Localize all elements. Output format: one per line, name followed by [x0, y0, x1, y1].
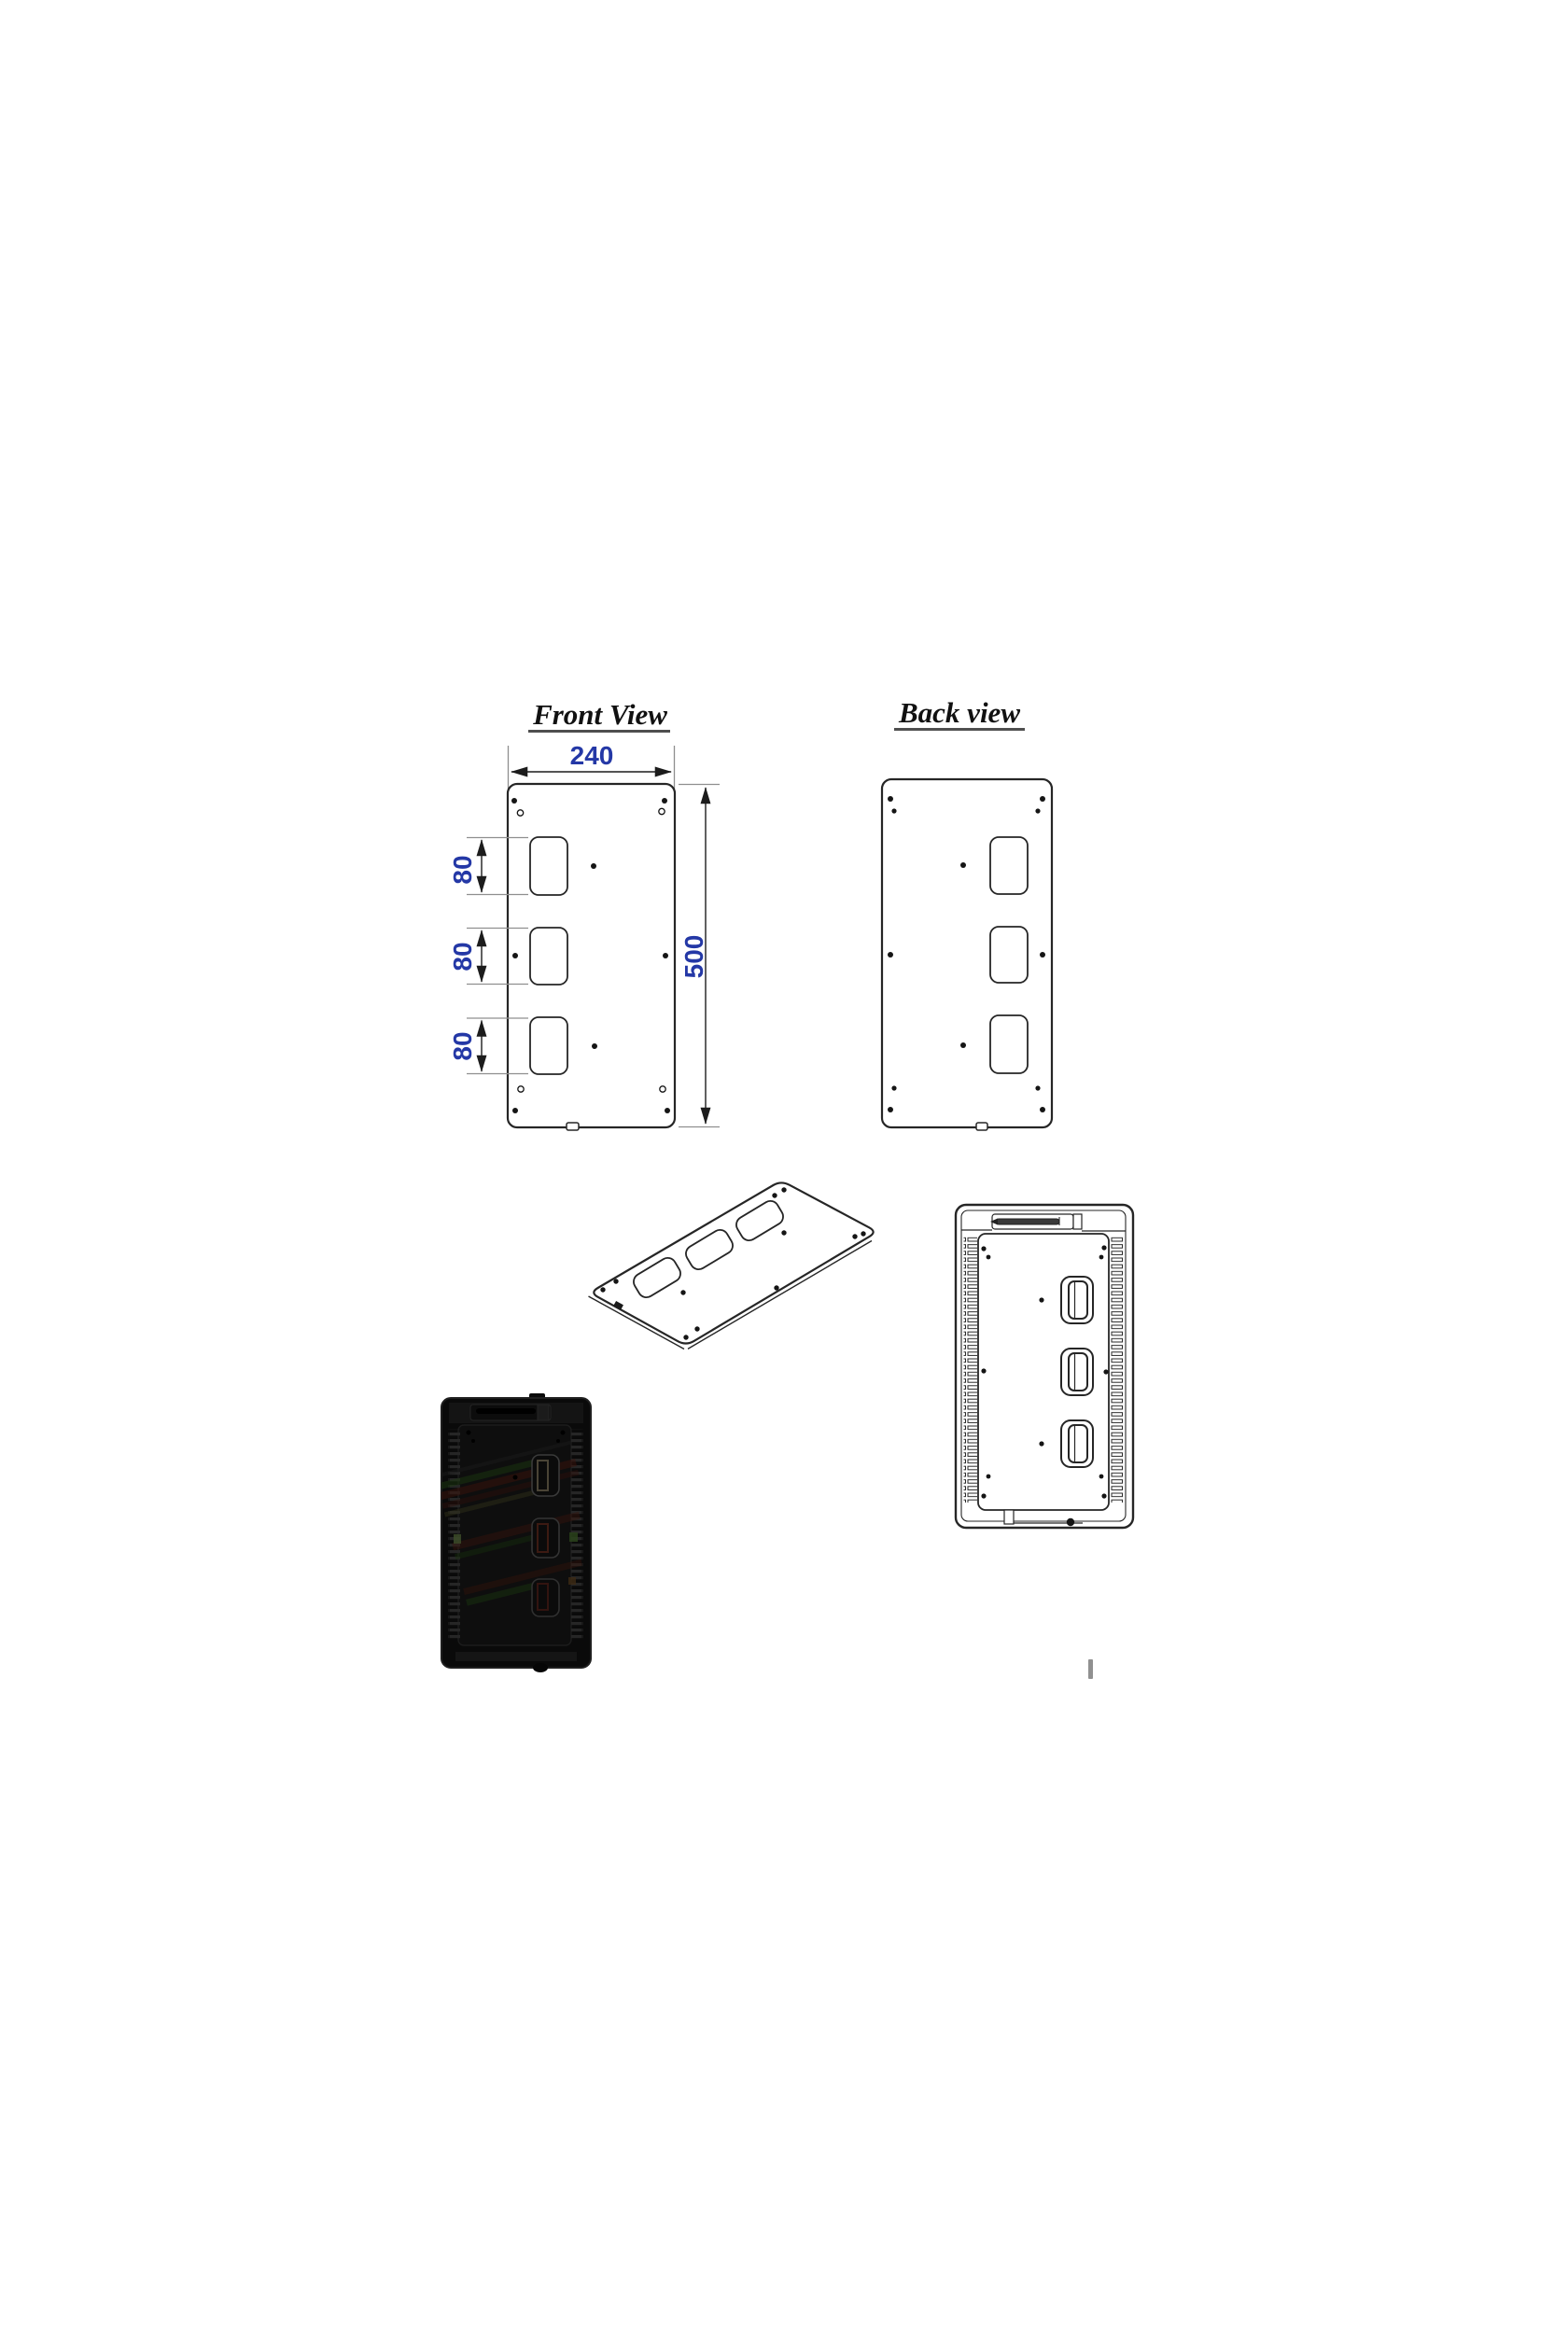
front-view-title: Front View: [532, 698, 667, 731]
handle-grip-slot: [996, 1219, 1059, 1224]
back-plate-bottom-notch: [976, 1123, 987, 1130]
front-plate-slots: [530, 837, 567, 1074]
back-view: Back view: [882, 696, 1052, 1130]
drawing-sheet: Front View 240: [0, 0, 1568, 2349]
vent-grille-left: [964, 1236, 978, 1503]
front-view: Front View 240: [448, 698, 720, 1130]
back-view-title-underline: [894, 728, 1025, 731]
render-bottom-foot: [533, 1663, 548, 1672]
dim-width-label: 240: [570, 741, 614, 770]
rear-detail-view: [956, 1205, 1133, 1528]
height-dimension: 500: [679, 785, 720, 1127]
iso-slots: [631, 1198, 787, 1301]
dim-pitch-label-2: 80: [448, 942, 477, 971]
dim-height-label: 500: [679, 935, 708, 979]
back-view-title: Back view: [898, 696, 1020, 729]
iso-thickness-edge-left: [589, 1296, 685, 1349]
dim-pitch-label-1: 80: [448, 855, 477, 884]
iso-plate-outline: [594, 1182, 873, 1343]
render-slots: [532, 1455, 559, 1616]
dim-pitch-label-3: 80: [448, 1031, 477, 1060]
isometric-view: [589, 1182, 874, 1349]
front-plate-bottom-notch: [567, 1123, 579, 1130]
technical-drawing-canvas: Front View 240: [0, 0, 1568, 2349]
iso-edge-notch: [613, 1301, 623, 1310]
product-photo-black: [435, 1393, 604, 1672]
keyhole-slots: [1061, 1277, 1093, 1467]
front-view-title-underline: [528, 730, 670, 733]
vent-grille-right: [1110, 1236, 1124, 1503]
cursor-mark: [1088, 1659, 1093, 1679]
back-plate-slots: [990, 837, 1028, 1073]
